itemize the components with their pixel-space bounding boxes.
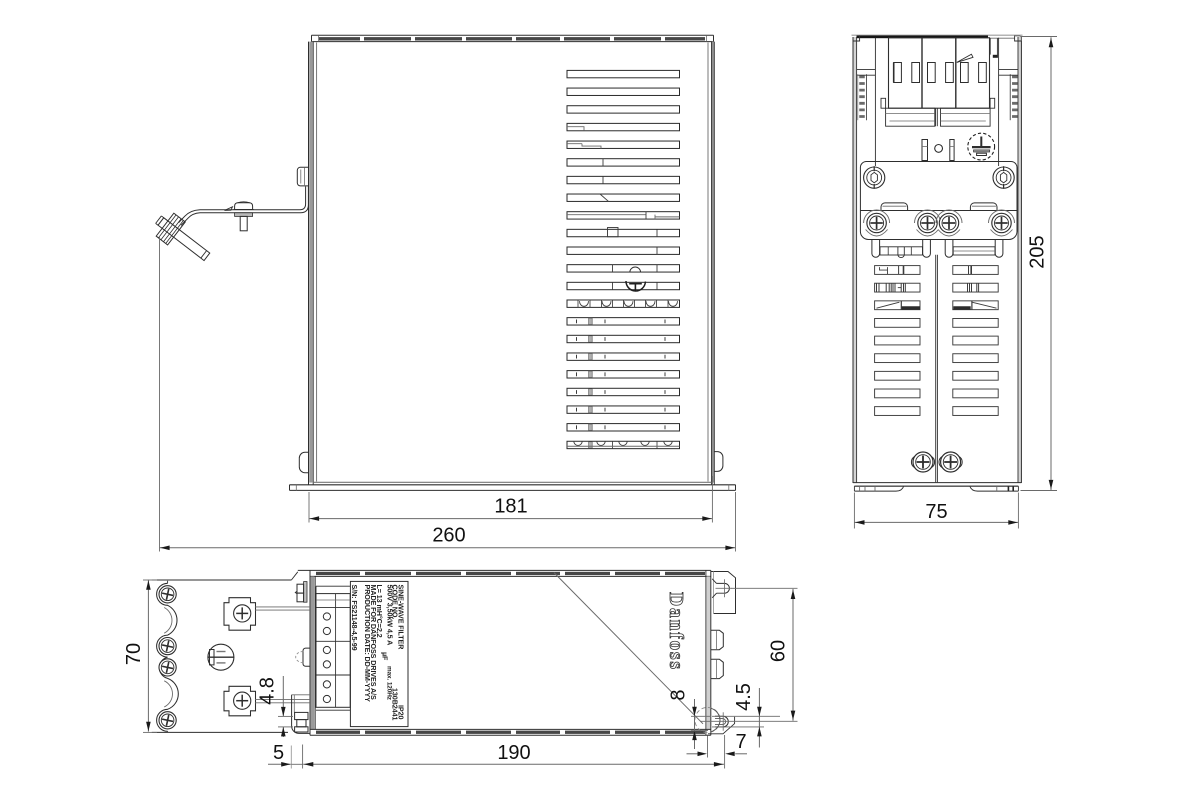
svg-text:L= 13 mH°C=2,2: L= 13 mH°C=2,2 <box>375 585 384 638</box>
svg-text:4.5: 4.5 <box>733 683 755 711</box>
svg-text:SINE-WAVE FILTER: SINE-WAVE FILTER <box>397 585 406 651</box>
svg-text:260: 260 <box>432 525 465 547</box>
svg-text:7: 7 <box>735 731 746 753</box>
svg-text:IP20: IP20 <box>397 705 406 719</box>
svg-text:Danfoss: Danfoss <box>665 592 686 671</box>
svg-text:4.8: 4.8 <box>257 677 279 705</box>
svg-text:70: 70 <box>123 643 145 665</box>
svg-text:S/N: FS21148-4,5-99: S/N: FS21148-4,5-99 <box>350 585 359 651</box>
svg-text:181: 181 <box>494 496 527 518</box>
svg-text:190: 190 <box>497 742 530 764</box>
svg-text:5: 5 <box>273 742 284 764</box>
svg-text:205: 205 <box>1027 235 1049 268</box>
svg-text:60: 60 <box>768 640 790 662</box>
svg-text:75: 75 <box>925 501 947 523</box>
svg-text:µF: µF <box>381 652 390 661</box>
svg-text:8: 8 <box>668 689 690 700</box>
